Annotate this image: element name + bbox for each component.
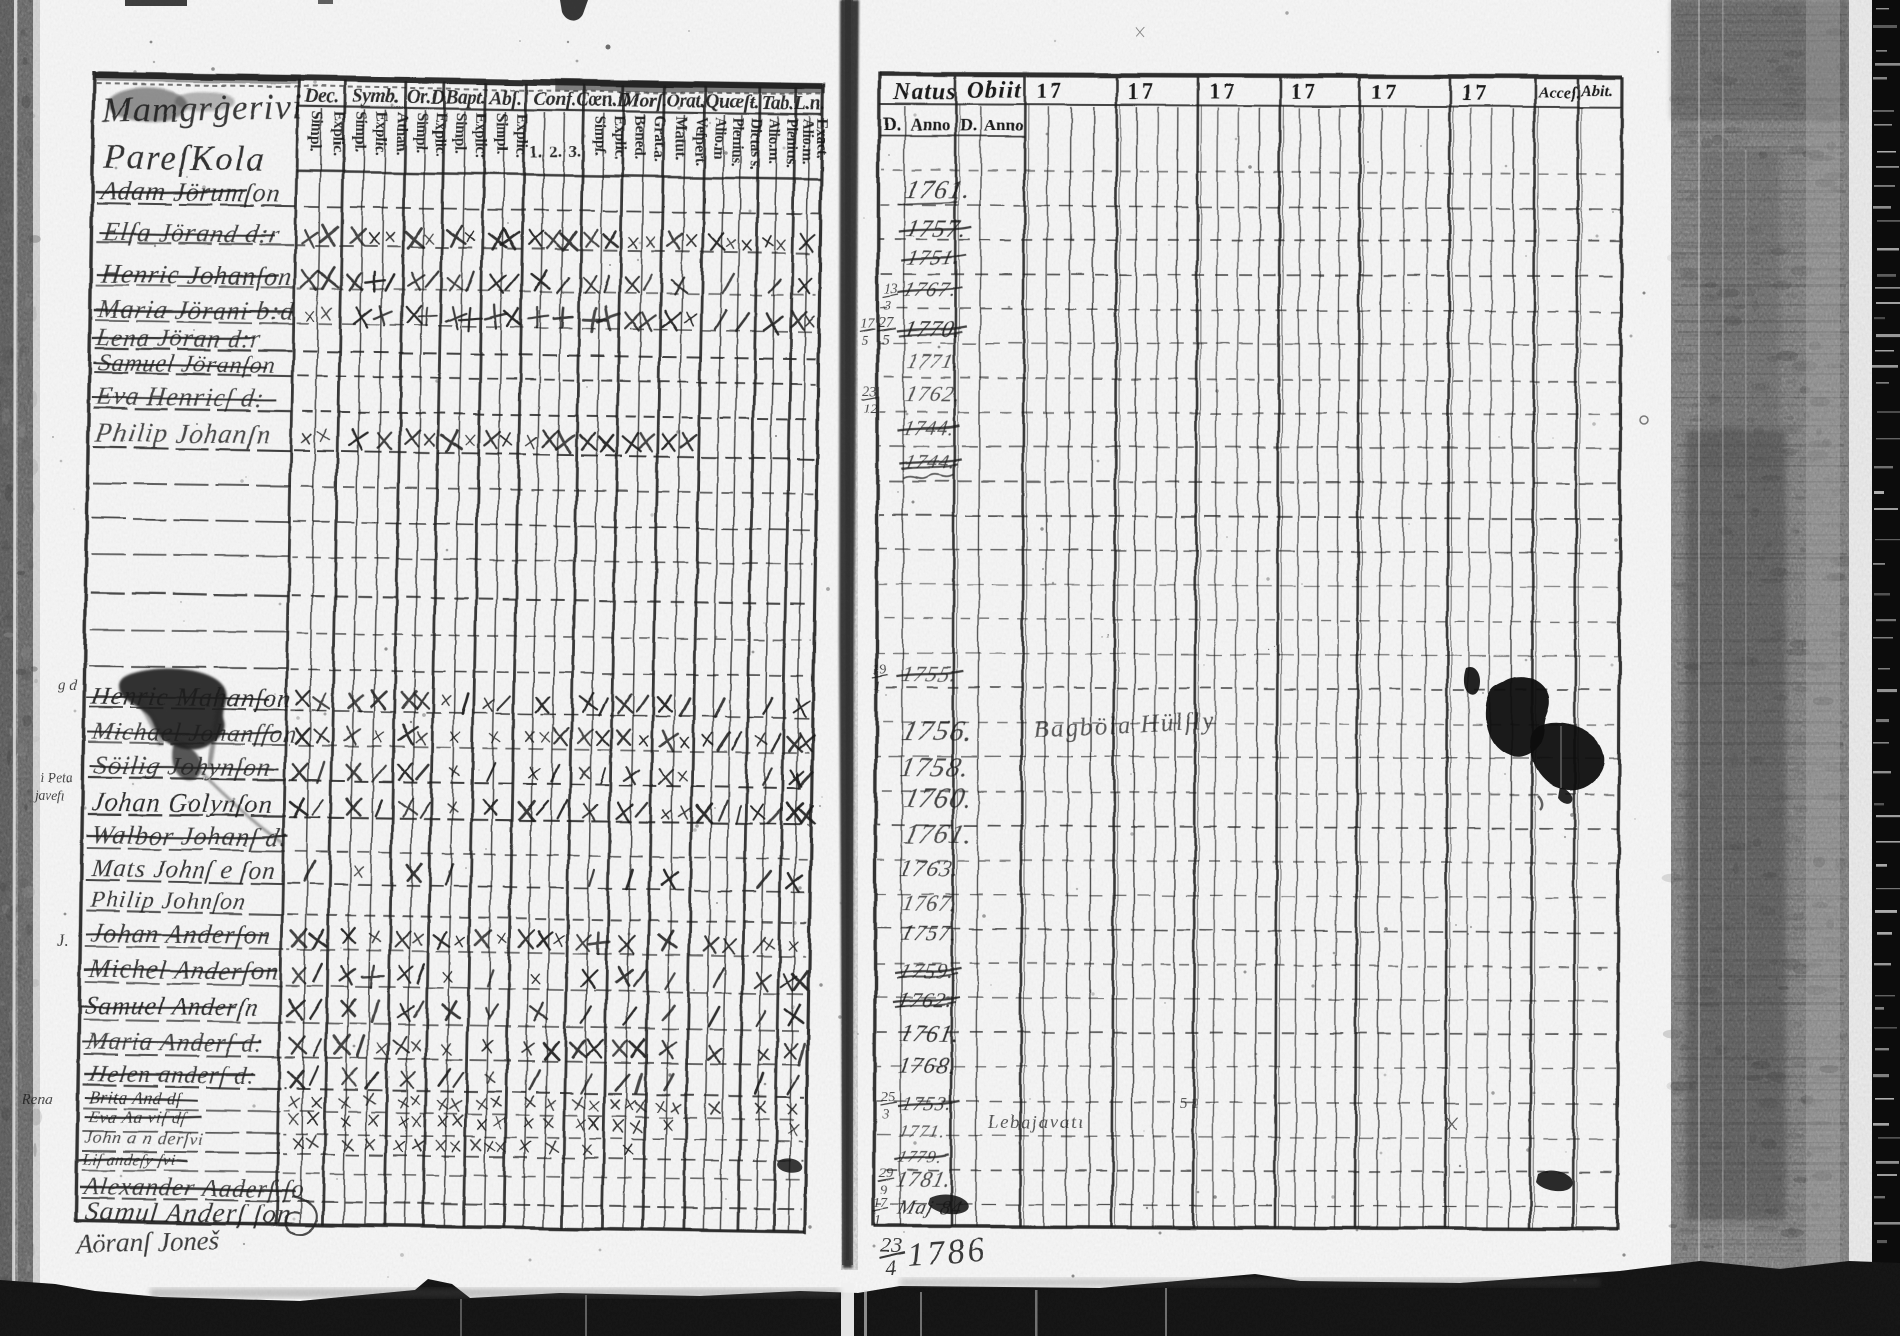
svg-text:1768.: 1768.	[896, 1053, 959, 1079]
svg-text:Explic.: Explic.	[330, 111, 348, 156]
svg-text:Athan.: Athan.	[393, 112, 411, 156]
svg-text:Simpl.: Simpl.	[493, 113, 511, 155]
svg-text:1: 1	[874, 1213, 881, 1228]
svg-text:Mats Johnſ e ſon: Mats Johnſ e ſon	[90, 855, 277, 885]
svg-text:Dictas s.: Dictas s.	[747, 117, 765, 170]
svg-text:1763.: 1763.	[897, 855, 963, 882]
svg-text:3.: 3.	[568, 142, 581, 161]
svg-text:Samul Anderſ ſon: Samul Anderſ ſon	[84, 1196, 294, 1229]
svg-text:. ·,: . ·,	[1267, 641, 1278, 653]
svg-text:Conf.: Conf.	[533, 89, 576, 111]
svg-text:Grat.a.: Grat.a.	[651, 116, 669, 162]
svg-text:Simpſ.: Simpſ.	[591, 115, 609, 157]
svg-text:1760.: 1760.	[901, 783, 977, 814]
svg-text:Acceſ.: Acceſ.	[1538, 85, 1580, 102]
svg-text:3: 3	[881, 1107, 889, 1122]
svg-text:John a n derſvi: John a n derſvi	[84, 1127, 205, 1149]
svg-text:D.: D.	[960, 114, 978, 134]
svg-text:17: 17	[1371, 79, 1399, 104]
svg-text:Dec.: Dec.	[303, 85, 339, 107]
svg-text:Tab.: Tab.	[761, 93, 794, 115]
svg-text:Explic.: Explic.	[513, 114, 531, 159]
svg-text:Explic.: Explic.	[372, 111, 390, 156]
svg-text:Explic.: Explic.	[432, 112, 450, 157]
svg-text:PareſKola: PareſKola	[102, 137, 266, 179]
svg-text:L.n.: L.n.	[793, 93, 825, 114]
svg-text:1761.: 1761.	[902, 174, 975, 204]
svg-text:1781.: 1781.	[894, 1166, 955, 1191]
svg-text:12: 12	[863, 402, 877, 417]
svg-text:Bapt.: Bapt.	[444, 88, 486, 110]
svg-text:Anno: Anno	[911, 115, 951, 134]
svg-text:1767.: 1767.	[900, 890, 961, 915]
svg-text:Simpl.: Simpl.	[352, 111, 370, 153]
svg-text:Plenius.: Plenius.	[783, 118, 801, 168]
svg-text:1786: 1786	[906, 1231, 988, 1273]
svg-text:Abſ.: Abſ.	[487, 88, 521, 110]
svg-text:1761.: 1761.	[897, 1020, 963, 1047]
svg-text:17: 17	[1128, 78, 1156, 103]
svg-text:Alio.m.: Alio.m.	[765, 118, 783, 165]
svg-text:Plenius.: Plenius.	[729, 117, 747, 167]
svg-text:i Peta: i Peta	[40, 771, 73, 786]
svg-text:Veſpert.: Veſpert.	[692, 116, 710, 167]
svg-text:Obiit: Obiit	[967, 77, 1022, 103]
svg-text:Morſ.: Morſ.	[622, 90, 667, 112]
svg-text:5: 5	[883, 332, 891, 348]
svg-text:5 1: 5 1	[1180, 1096, 1199, 1112]
svg-text:Aöranſ Joneš: Aöranſ Joneš	[73, 1225, 220, 1259]
svg-text:Quæſŧ.: Quæſŧ.	[706, 92, 759, 114]
svg-text:Natus: Natus	[892, 79, 957, 105]
svg-text:17: 17	[1209, 78, 1237, 103]
svg-text:4: 4	[885, 1255, 896, 1280]
svg-text:Matut.: Matut.	[672, 116, 690, 160]
svg-text:17: 17	[1291, 79, 1319, 104]
svg-text:1757.: 1757.	[899, 920, 960, 945]
svg-text:1771.: 1771.	[897, 1121, 948, 1141]
svg-text:17: 17	[1036, 78, 1064, 103]
svg-text:Philip Johanſn: Philip Johanſn	[93, 417, 273, 450]
svg-text:Simpl.: Simpl.	[452, 113, 470, 155]
svg-text:1762.: 1762.	[903, 381, 964, 406]
svg-text:1771.: 1771.	[904, 349, 962, 373]
svg-text:5: 5	[862, 334, 869, 349]
svg-text:g d: g d	[58, 678, 77, 694]
svg-text:Orat.: Orat.	[666, 91, 706, 113]
svg-text:Abit.: Abit.	[1580, 83, 1613, 100]
svg-text:1758.: 1758.	[897, 752, 973, 783]
svg-text:1: 1	[873, 679, 880, 694]
svg-text:Simpl.: Simpl.	[413, 112, 431, 154]
svg-text:javefı: javefı	[32, 789, 65, 804]
svg-text:Anno: Anno	[984, 115, 1024, 134]
svg-text:Explic.: Explic.	[611, 115, 629, 160]
svg-text:Simpl.: Simpl.	[307, 110, 325, 152]
svg-text:1756.: 1756.	[899, 715, 977, 747]
svg-text:Explic:: Explic:	[472, 113, 490, 159]
svg-text:Lebajavatı: Lebajavatı	[987, 1112, 1084, 1133]
svg-text:Rena: Rena	[21, 1092, 53, 1108]
svg-text:Bened.: Bened.	[631, 115, 649, 159]
svg-text:Exact.: Exact.	[813, 118, 831, 159]
svg-text:17: 17	[1461, 80, 1489, 105]
svg-text:· ¹: · ¹	[1100, 631, 1109, 643]
svg-text:2.: 2.	[549, 142, 562, 161]
svg-text:D.: D.	[884, 114, 902, 134]
svg-text:Philip Johnſon: Philip Johnſon	[88, 887, 248, 915]
svg-text:J.: J.	[57, 931, 69, 950]
svg-text:Or.D: Or.D	[407, 87, 445, 109]
svg-text:1.: 1.	[529, 142, 542, 161]
svg-text:1761.: 1761.	[901, 819, 977, 850]
